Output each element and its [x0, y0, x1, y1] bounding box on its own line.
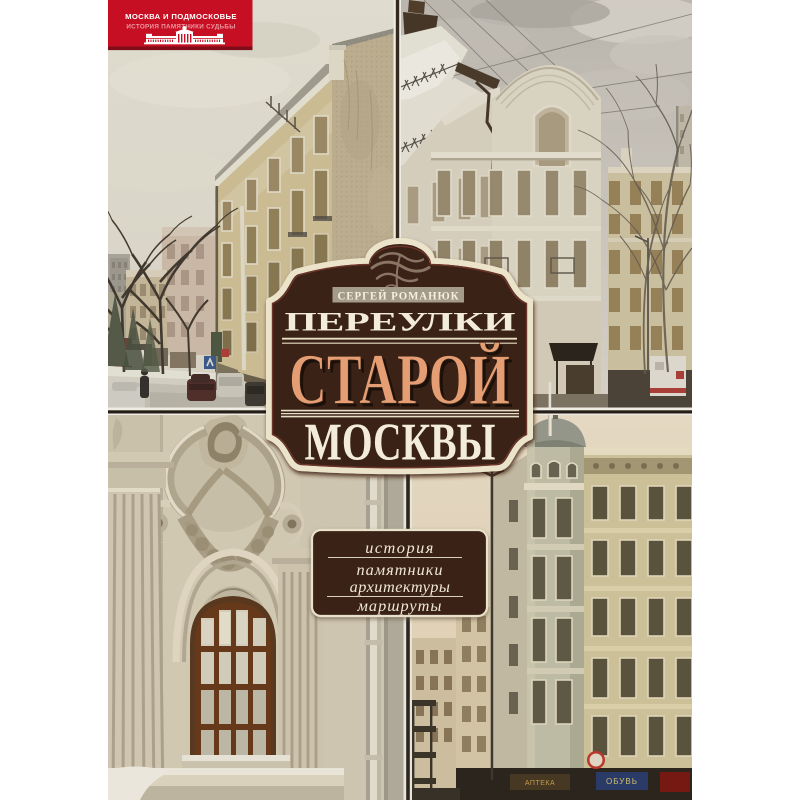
svg-text:МОСКВЫ: МОСКВЫ	[305, 414, 496, 472]
svg-text:МОСКВА И ПОДМОСКОВЬЕ: МОСКВА И ПОДМОСКОВЬЕ	[125, 12, 237, 21]
svg-text:ПЕРЕУЛКИ: ПЕРЕУЛКИ	[285, 307, 517, 337]
svg-text:СТАРОЙ: СТАРОЙ	[289, 340, 510, 420]
svg-text:история: история	[365, 538, 435, 557]
svg-text:маршруты: маршруты	[357, 596, 443, 615]
svg-text:СЕРГЕЙ РОМАНЮК: СЕРГЕЙ РОМАНЮК	[338, 289, 460, 303]
svg-text:ИСТОРИЯ ПАМЯТНИКИ СУДЬБЫ: ИСТОРИЯ ПАМЯТНИКИ СУДЬБЫ	[126, 24, 235, 31]
svg-text:архитектуры: архитектуры	[350, 577, 451, 596]
